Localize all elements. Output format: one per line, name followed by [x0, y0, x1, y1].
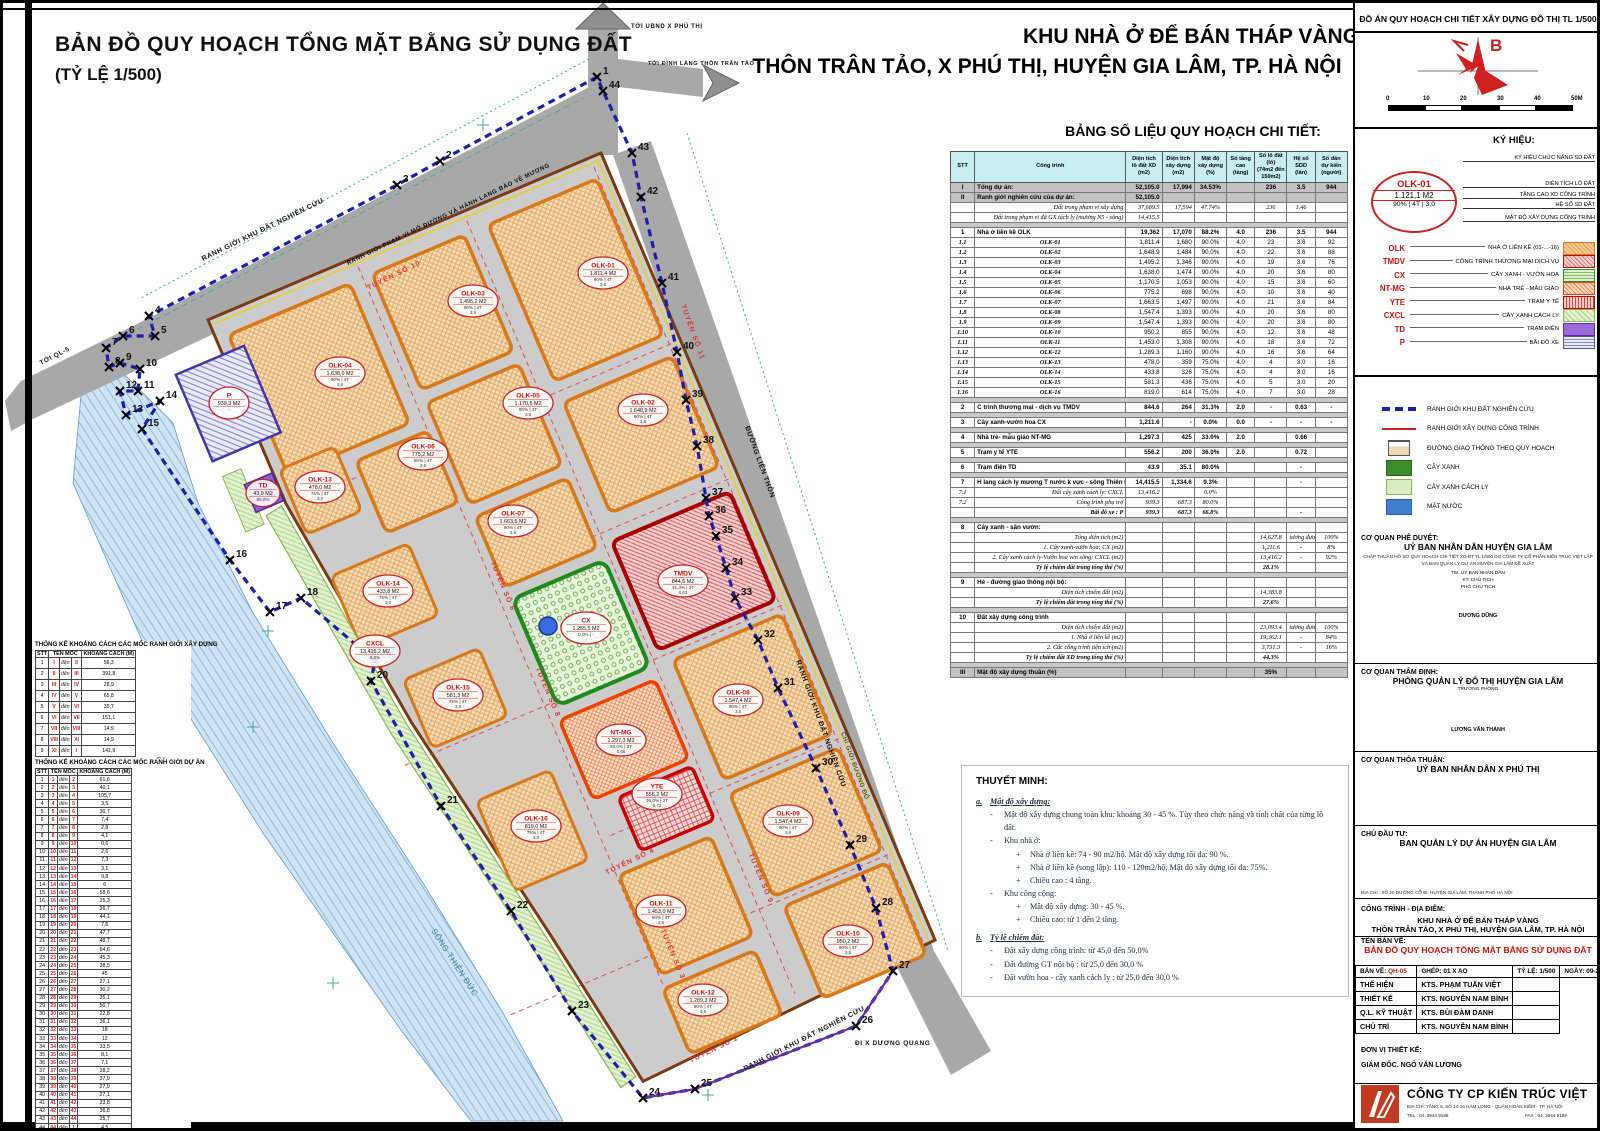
svg-text:OLK-06: OLK-06	[411, 444, 435, 451]
boundary-marker-38: 38	[693, 435, 715, 450]
road-label: TUYẾN SỐ 11	[679, 303, 708, 361]
table-row: 4444đến14,5	[36, 1124, 132, 1131]
svg-text:75% | 4T: 75% | 4T	[527, 830, 545, 835]
table-row: Diện tích chiếm đất (m2)14,383.8	[951, 587, 1348, 597]
parcel-olk-02	[564, 356, 720, 513]
svg-text:26: 26	[862, 1015, 874, 1026]
table-row: 1.12OLK-121,289.31,16090.0%4.0163.664	[951, 347, 1348, 357]
table-row: 7.1Đất cây xanh cách ly: CXCL13,416.20.0…	[951, 487, 1348, 497]
svg-text:3,0: 3,0	[317, 496, 324, 501]
svg-text:44: 44	[609, 80, 621, 91]
parcel-label-olk-16: OLK-16819,0 M275% | 4T3,0	[511, 810, 561, 842]
scale-segment	[1536, 105, 1573, 111]
column-header: Số dân dự kiến (người)	[1315, 152, 1347, 183]
svg-text:OLK-08: OLK-08	[726, 690, 750, 697]
table-row: 1. Nhà ở liền kề (m2)19,362.1-84%	[951, 632, 1348, 642]
svg-text:-: -	[585, 637, 587, 642]
table-row: 4IVđếnV65,8	[36, 691, 136, 702]
table-row: 3131đến3236,1	[36, 1018, 132, 1026]
svg-text:22: 22	[517, 900, 529, 911]
park-pond	[539, 617, 557, 635]
svg-text:3,6: 3,6	[640, 419, 647, 424]
boundary-marker-23: 23	[568, 1000, 590, 1015]
map-text: RANH GIỚI KHU ĐẤT NGHIÊN CỨU	[794, 658, 849, 788]
svg-text:37: 37	[712, 487, 724, 498]
svg-text:3,0: 3,0	[385, 600, 392, 605]
parcel-olk-11	[619, 836, 753, 974]
scale-tick-label: 20	[1460, 96, 1467, 102]
boundary-marker-14: 14	[156, 390, 178, 405]
svg-text:1.663,5 M2: 1.663,5 M2	[500, 519, 527, 525]
table-row: Tổng diện tích (m2)14,627.8tương đương10…	[951, 532, 1348, 542]
svg-text:31,3% | 2T: 31,3% | 2T	[672, 585, 694, 590]
note-line: b.Tỷ lệ chiếm đất:	[976, 931, 1336, 944]
svg-text:32: 32	[764, 629, 776, 640]
svg-text:3,6: 3,6	[700, 1009, 707, 1014]
svg-text:90% | 4T: 90% | 4T	[414, 458, 432, 463]
project-title-line2: THÔN TRÂN TẢO, X PHÚ THỊ, HUYỆN GIA LÂM,…	[731, 55, 1363, 79]
svg-text:1.453,0 M2: 1.453,0 M2	[648, 909, 675, 915]
svg-text:42: 42	[647, 186, 659, 197]
sample-area: 1.121,1 M2	[1373, 190, 1455, 201]
table-row: 2626đến2727,1	[36, 978, 132, 986]
svg-text:556,2 M2: 556,2 M2	[646, 792, 668, 798]
legend-item-olk: OLKNHÀ Ở LIỀN KỀ (01-...-16)	[1363, 241, 1595, 255]
svg-text:24: 24	[649, 1087, 661, 1098]
parcel-label-cx: CX1.255,5 M20,0% | --	[561, 612, 611, 644]
boundary-marker-10: 10	[136, 358, 158, 373]
parcel-olk-09	[730, 748, 882, 897]
svg-text:16: 16	[236, 549, 248, 560]
svg-text:27: 27	[899, 960, 911, 971]
svg-text:1.289,3 M2: 1.289,3 M2	[690, 998, 717, 1004]
svg-text:1.547,4 M2: 1.547,4 M2	[725, 698, 752, 704]
parcel-label-olk-12: OLK-121.289,3 M290% | 4T3,6	[678, 984, 728, 1016]
svg-text:CXCL: CXCL	[366, 641, 384, 648]
boundary-marker-18: 18	[297, 587, 319, 602]
table-row: 2323đến2445,3	[36, 954, 132, 962]
parcel-label-olk-07: OLK-071.663,5 M290% | 4T3,6	[488, 505, 538, 537]
table-row: 7H lang cách ly mương T nước k vực - sôn…	[951, 477, 1348, 487]
table-row: 2. Các công trình tiện ích (m2)3,731.3-1…	[951, 642, 1348, 652]
svg-text:43,9 M2: 43,9 M2	[253, 491, 272, 497]
table-row: 7VIIđếnVIII14,9	[36, 724, 136, 735]
parcel-olk-10	[784, 863, 926, 999]
parcel-olk-05	[427, 364, 562, 504]
legend-symbol	[1388, 440, 1410, 456]
planning-data-table: STTCông trìnhDiện tích lô đất XD (m2)Diệ…	[950, 151, 1348, 678]
table-row: IIRanh giới nghiên cứu của dự án:52,105.…	[951, 192, 1348, 202]
svg-text:80,0%: 80,0%	[256, 497, 269, 502]
svg-text:0,0%: 0,0%	[370, 655, 380, 660]
scale-tick-label: 50M	[1571, 96, 1583, 102]
road-label: TUYẾN SỐ 8	[534, 665, 564, 718]
svg-text:P: P	[227, 393, 232, 400]
design-unit-box: ĐƠN VỊ THIẾT KẾ: GIÁM ĐỐC. NGÔ VĂN LƯƠNG	[1355, 1043, 1600, 1084]
scale-segment	[1499, 105, 1536, 111]
svg-text:90% | 4T: 90% | 4T	[652, 915, 670, 920]
boundary-marker-4: 4	[145, 305, 161, 320]
table-row: 77đến82,8	[36, 824, 132, 832]
table-row: 1.6OLK-06775.269890.0%4.0103.640	[951, 287, 1348, 297]
column-header: Số tầng cao (tầng)	[1227, 152, 1255, 183]
legend-item-nt-mg: NT-MGNHÀ TRẺ - MẪU GIÁO	[1363, 282, 1595, 296]
boundary-marker-11: 11	[134, 380, 155, 395]
boundary-marker-34: 34	[722, 557, 744, 572]
boundary-marker-13: 13	[122, 404, 144, 419]
note-line: -Đất vườn hoa - cây xanh cách ly : từ 25…	[976, 971, 1336, 984]
svg-text:OLK-07: OLK-07	[501, 511, 525, 518]
boundary-marker-8: 8	[105, 356, 121, 371]
boundary-marker-9: 9	[116, 352, 132, 367]
svg-text:OLK-16: OLK-16	[524, 816, 548, 823]
boundary-marker-3: 3	[393, 174, 409, 189]
svg-text:36,0% | 2T: 36,0% | 2T	[646, 798, 668, 803]
column-header: Diện tích xây dựng (m2)	[1162, 152, 1194, 183]
table-row: 1.14OLK-14433.832675.0%4.043.016	[951, 367, 1348, 377]
parcel-olk-04	[229, 283, 410, 474]
table-row: 2727đến2830,2	[36, 986, 132, 994]
svg-text:29: 29	[856, 834, 868, 845]
table-row: 88đến94,1	[36, 832, 132, 840]
legend-item-td: TDTRẠM ĐIỆN	[1363, 322, 1595, 336]
table-row: 2020đến2147,7	[36, 929, 132, 937]
legend-swatch	[1563, 323, 1595, 336]
svg-text:39: 39	[692, 389, 704, 400]
table-row: 10Đất xây dựng công trình	[951, 612, 1348, 622]
legend-symbol	[1382, 428, 1416, 430]
drawing-name-box: TÊN BẢN VẼ: BẢN ĐỒ QUY HOẠCH TỔNG MẶT BẰ…	[1355, 936, 1600, 966]
table-row: 1414đến156	[36, 881, 132, 889]
scale-segment	[1388, 105, 1425, 111]
boundary-legend-item: ĐƯỜNG GIAO THÔNG THEO QUY HOẠCH	[1381, 440, 1597, 456]
svg-text:0,63: 0,63	[679, 590, 688, 595]
svg-text:OLK-15: OLK-15	[446, 685, 470, 692]
boundary-marker-40: 40	[673, 341, 695, 356]
table-row: 11đến261,6	[36, 776, 132, 784]
study-boundary	[106, 77, 893, 1098]
symbol-key-label: HỆ SỐ SD ĐẤT	[1463, 202, 1595, 209]
map-text: SÔNG THIÊN ĐỨC	[429, 927, 479, 998]
data-table-title: BẢNG SỐ LIỆU QUY HOẠCH CHI TIẾT:	[1033, 123, 1353, 139]
parcel-label-olk-08: OLK-081.547,4 M290% | 4T3,6	[713, 684, 763, 716]
table-row: Bãi đỗ xe : P939.3687.366.8%-	[951, 507, 1348, 517]
parcel-label-td: TD43,9 M280,0%	[246, 479, 280, 506]
boundary-marker-29: 29	[846, 834, 868, 849]
sample-density-floors: 90% | 4T | 3,0	[1373, 201, 1455, 208]
plan-sheet: 1234567891011121314151617181920212223242…	[0, 0, 1600, 1131]
table-header-row: STTCông trìnhDiện tích lô đất XD (m2)Diệ…	[951, 152, 1348, 183]
boundary-marker-7: 7	[102, 337, 118, 352]
note-line: +Nhà ở liền kề: 74 - 90 m2/hộ. Mật độ xâ…	[976, 848, 1336, 861]
table-row: 3333đến3412	[36, 1035, 132, 1043]
svg-text:OLK-14: OLK-14	[376, 581, 400, 588]
table-row: 2222đến2364,6	[36, 945, 132, 953]
svg-text:1.297,3 M2: 1.297,3 M2	[608, 738, 635, 744]
svg-text:OLK-02: OLK-02	[631, 400, 655, 407]
parcel-nt-mg	[559, 680, 688, 800]
svg-text:90% | 4T: 90% | 4T	[694, 1004, 712, 1009]
boundary-marker-5: 5	[151, 325, 167, 340]
svg-text:OLK-05: OLK-05	[516, 393, 540, 400]
table-row: 8Cây xanh - sân vườn:	[951, 522, 1348, 532]
svg-text:8: 8	[115, 356, 121, 367]
table-row: 3636đến377,1	[36, 1059, 132, 1067]
parcel-yte	[618, 766, 714, 851]
map-text: RANH GIỚI KHU ĐẤT NGHIÊN CỨU	[199, 195, 324, 263]
note-line: +Mật độ xây dựng: 30 - 45 %.	[976, 900, 1336, 913]
svg-text:2: 2	[446, 150, 452, 161]
svg-text:3,6: 3,6	[600, 282, 607, 287]
road-label: TUYẾN SỐ 6	[489, 559, 519, 612]
svg-text:6: 6	[129, 325, 135, 336]
table-row: Diện tích chiếm đất (m2)23,093.4tương đư…	[951, 622, 1348, 632]
svg-text:33,0% | 2T: 33,0% | 2T	[610, 744, 632, 749]
svg-text:OLK-11: OLK-11	[649, 901, 672, 908]
svg-text:12: 12	[126, 380, 138, 391]
note-line: -Khu công cộng:	[976, 887, 1336, 900]
review-box: CƠ QUAN THẨM ĐỊNH: PHÒNG QUẢN LÝ ĐÔ THỊ …	[1355, 663, 1600, 752]
svg-text:33: 33	[741, 587, 753, 598]
table-row: 2. Cây xanh cách ly-Vườn hoa ven sông: C…	[951, 552, 1348, 562]
svg-text:-: -	[374, 660, 376, 665]
legend-swatch	[1563, 255, 1595, 268]
road-label: TUYẾN SỐ 10	[365, 257, 422, 292]
table-row: 3232đến3318	[36, 1026, 132, 1034]
svg-text:20: 20	[377, 670, 389, 681]
parcel-label-olk-01: OLK-011.811,4 M290% | 4T3,6	[578, 257, 628, 289]
svg-text:3,6: 3,6	[510, 530, 517, 535]
column-header: TÊN MỐC	[49, 651, 82, 658]
svg-text:13.416,2 M2: 13.416,2 M2	[360, 649, 390, 655]
svg-text:7: 7	[112, 337, 118, 348]
table-row: 7.2Công trình phụ trợ939.3687.380.0%	[951, 497, 1348, 507]
parcel-label-olk-13: OLK-13478,0 M275% | 4T3,0	[295, 471, 345, 503]
table-row: 1IđếnII56,3	[36, 658, 136, 669]
table-row: Đất trong phạm vi đã GX tách ly (mương N…	[951, 212, 1348, 222]
boundary-legend-item: CÂY XANH	[1381, 460, 1597, 476]
road-label: TUYẾN SỐ 2	[687, 1032, 740, 1064]
sheet-title: BẢN ĐỒ QUY HOẠCH TỔNG MẶT BẰNG SỬ DỤNG Đ…	[55, 33, 632, 57]
svg-text:90% | 4T: 90% | 4T	[519, 407, 537, 412]
boundary-marker-36: 36	[705, 505, 727, 520]
boundary-marker-1: 1	[593, 66, 609, 81]
parcel-olk-15	[403, 648, 507, 748]
svg-text:90% | 4T: 90% | 4T	[634, 414, 652, 419]
road-label: TUYẾN SỐ 4	[603, 844, 656, 876]
boundary-marker-44: 44	[599, 80, 621, 95]
frame-left	[25, 3, 32, 1131]
table-row: 1515đến1658,6	[36, 889, 132, 897]
legend-swatch	[1563, 336, 1595, 349]
svg-text:3,6: 3,6	[735, 709, 742, 714]
svg-text:4: 4	[155, 305, 161, 316]
svg-text:3: 3	[403, 174, 409, 185]
table-row: 3535đến368,1	[36, 1051, 132, 1059]
project-title-line1: KHU NHÀ Ở ĐỂ BÁN THÁP VÀNG	[1023, 25, 1359, 49]
table-row: 1010đến112,6	[36, 848, 132, 856]
green-strip	[222, 469, 264, 532]
svg-text:581,3 M2: 581,3 M2	[447, 693, 469, 699]
boundary-marker-41: 41	[658, 272, 680, 287]
explanatory-notes: THUYẾT MINH: a.Mật độ xây dựng:-Mật độ x…	[961, 765, 1349, 997]
project-box: CÔNG TRÌNH - ĐỊA ĐIỂM: KHU NHÀ Ở ĐỂ BÁN …	[1355, 898, 1600, 937]
scale-tick-label: 0	[1386, 96, 1389, 102]
svg-text:90% | 4T: 90% | 4T	[594, 277, 612, 282]
svg-text:90% | 4T: 90% | 4T	[729, 704, 747, 709]
parcel-cxcl-strip	[265, 466, 637, 1128]
company-footer: CÔNG TY CP KIẾN TRÚC VIỆT ĐỊA CHỈ: TẦNG …	[1355, 1085, 1600, 1125]
boundary-marker-30: 30	[812, 757, 834, 772]
boundary-marker-15: 15	[138, 418, 160, 433]
svg-text:-: -	[228, 407, 230, 412]
road-label: TUYẾN SỐ 3	[659, 927, 689, 980]
table-row: Tỷ lệ chiếm đất trong tổng thể (%)28.1%	[951, 562, 1348, 572]
svg-text:43: 43	[638, 142, 650, 153]
svg-text:13: 13	[132, 404, 144, 415]
parcel-olk-08	[673, 614, 832, 780]
column-header: Công trình	[975, 152, 1126, 183]
boundary-marker-43: 43	[628, 142, 650, 157]
note-line: -Đất xây dựng công trình: từ 45,0 đến 50…	[976, 944, 1336, 957]
svg-text:23: 23	[578, 1000, 590, 1011]
table-row: 6VIđếnVII151,1	[36, 713, 136, 724]
svg-text:3,0: 3,0	[455, 704, 462, 709]
svg-text:950,2 M2: 950,2 M2	[837, 939, 859, 945]
svg-text:1.547,4 M2: 1.547,4 M2	[775, 819, 802, 825]
parcel-label-olk-04: OLK-041.638,0 M290% | 4T3,6	[315, 357, 365, 389]
parcel-label-olk-06: OLK-06775,2 M290% | 4T3,6	[398, 438, 448, 470]
table-row: 1.5OLK-051,170.51,05390.0%4.0153.660	[951, 277, 1348, 287]
boundary-marker-16: 16	[226, 549, 248, 564]
scale-tick-label: 30	[1497, 96, 1504, 102]
svg-text:0,72: 0,72	[653, 803, 662, 808]
site-blocks	[161, 153, 941, 1131]
parcel-olk-06	[356, 431, 458, 533]
table-row: 2424đến2538,5	[36, 962, 132, 970]
legend-symbol	[1386, 460, 1412, 476]
parcel-label-nt-mg: NT-MG1.297,3 M233,0% | 2T0,66	[596, 724, 646, 756]
map-text: RANH GIỚI KHU ĐẤT NGHIÊN CỨU	[741, 1003, 866, 1073]
table-row: 2IIđếnIII391,8	[36, 669, 136, 680]
table-row: 1.3OLK-031,495.21,34690.0%4.0193.676	[951, 257, 1348, 267]
parcel-label-tmdv: TMDV844,6 M231,3% | 2T0,63	[658, 565, 708, 597]
table-row: 1.9OLK-091,547.41,39390.0%4.0203.680	[951, 317, 1348, 327]
note-line: +Chiều cao : 4 tầng.	[976, 874, 1336, 887]
svg-text:433,8 M2: 433,8 M2	[377, 589, 399, 595]
info-row: Q.L. KỸ THUẬTKTS. BÙI ĐÀM DANH	[1356, 1006, 1600, 1020]
symbol-key-label: MẬT ĐỘ XÂY DỰNG CÔNG TRÌNH	[1463, 215, 1595, 222]
svg-text:38: 38	[703, 435, 715, 446]
svg-text:1.638,0 M2: 1.638,0 M2	[327, 371, 354, 377]
sheet-scale: (TỶ LỆ 1/500)	[55, 65, 162, 85]
table-row: 3737đến3828,2	[36, 1067, 132, 1075]
boundary-marker-12: 12	[116, 380, 138, 395]
boundary-marker-37: 37	[702, 487, 724, 502]
table-row: 9XIđếnI141,9	[36, 746, 136, 757]
column-header: KHOẢNG CÁCH (M)	[82, 651, 136, 658]
info-row: CHỦ TRÌKTS. NGUYỄN NAM BÌNH	[1356, 1020, 1600, 1034]
parcel-label-olk-05: OLK-051.170,5 M290% | 4T3,6	[503, 387, 553, 419]
svg-text:819,0 M2: 819,0 M2	[525, 824, 547, 830]
table-row: 1.10OLK-10950.285590.0%4.0123.648	[951, 327, 1348, 337]
table-row: 4242đến4336,8	[36, 1107, 132, 1115]
table-row: 3IIIđếnIV28,9	[36, 680, 136, 691]
table-row: 4343đến4425,7	[36, 1115, 132, 1123]
column-header: STT	[36, 651, 49, 658]
boundary-marker-17: 17	[266, 601, 288, 616]
svg-text:OLK-12: OLK-12	[691, 990, 715, 997]
info-cell: NGÀY: 09-2011	[1560, 966, 1600, 978]
table-row: 1313đến149,8	[36, 873, 132, 881]
svg-text:OLK-10: OLK-10	[836, 931, 860, 938]
table-row: 2828đến2935,1	[36, 994, 132, 1002]
construction-boundary-stats: THỐNG KÊ KHOẢNG CÁCH CÁC MỐC RANH GIỚI X…	[35, 641, 191, 757]
map-text: ĐƯỜNG LIÊN THÔN	[743, 425, 777, 499]
legend-swatch	[1563, 296, 1595, 309]
note-line: -Mật độ xây dựng chung toàn khu: khoảng …	[976, 808, 1336, 834]
parcel-label-olk-02: OLK-021.648,9 M290% | 4T3,6	[618, 394, 668, 426]
parcel-label-olk-10: OLK-10950,2 M290% | 4T3,6	[823, 925, 873, 957]
scale-segment	[1425, 105, 1462, 111]
boundary-marker-27: 27	[889, 960, 911, 975]
info-row: THIẾT KẾKTS. NGUYỄN NAM BÌNH	[1356, 992, 1600, 1006]
parcel-labels: OLK-011.811,4 M290% | 4T3,6OLK-021.648,9…	[209, 257, 873, 1016]
svg-text:OLK-13: OLK-13	[308, 477, 332, 484]
table-row: 1.16OLK-16819.061475.0%4.073.028	[951, 387, 1348, 397]
boundary-marker-20: 20	[367, 670, 389, 685]
notes-title: THUYẾT MINH:	[976, 776, 1336, 787]
table-row: 66đến77,4	[36, 816, 132, 824]
svg-text:OLK-04: OLK-04	[328, 363, 352, 370]
table-row: 3939đến4027,9	[36, 1083, 132, 1091]
legend-item-p: PBÃI ĐỖ XE	[1363, 336, 1595, 350]
legend-item-tmdv: TMDVCÔNG TRÌNH THƯƠNG MẠI DỊCH VỤ	[1363, 255, 1595, 269]
scale-tick-label: 40	[1534, 96, 1541, 102]
svg-text:75% | 4T: 75% | 4T	[379, 595, 397, 600]
table-row: 1111đến127,3	[36, 856, 132, 864]
svg-text:3,6: 3,6	[420, 463, 427, 468]
column-header: KHOẢNG CÁCH (M)	[78, 769, 132, 776]
table-row: ITổng dự án:52,105.017,99434.53%2363.594…	[951, 182, 1348, 192]
table-row: 2525đến2645	[36, 970, 132, 978]
svg-text:30: 30	[822, 757, 834, 768]
table-row: 3434đến3533,5	[36, 1043, 132, 1051]
sample-parcel-symbol: OLK-01 1.121,1 M2 90% | 4T | 3,0	[1371, 171, 1457, 233]
svg-text:90% | 4T: 90% | 4T	[839, 945, 857, 950]
legend-symbol	[1386, 479, 1412, 495]
table-row: 1818đến1944,1	[36, 913, 132, 921]
boundary-marker-28: 28	[872, 897, 894, 912]
note-line: -Khu nhà ở:	[976, 834, 1336, 847]
boundary-marker-24: 24	[639, 1087, 661, 1102]
parcel-p-parking	[176, 346, 281, 461]
table-row: IIIMật độ xây dựng thuần (%)35%	[951, 667, 1348, 677]
parcel-olk-07	[475, 478, 597, 587]
parcel-olk-03	[372, 235, 513, 390]
survey-crosses	[247, 119, 714, 1101]
sample-code: OLK-01	[1373, 179, 1455, 190]
map-text: TỚI QL-5	[38, 344, 71, 367]
symbol-key-label: KÝ HIỆU CHỨC NĂNG SD ĐẤT	[1463, 155, 1595, 162]
table-row: 6Trạm điện TD43.935.180.0%-	[951, 462, 1348, 472]
svg-text:31: 31	[784, 677, 796, 688]
map-text: ĐI X DƯƠNG QUANG	[855, 1040, 930, 1047]
project-boundary-stats: THỐNG KÊ KHOẢNG CÁCH CÁC MỐC RANH GIỚI D…	[35, 759, 191, 1131]
svg-text:TMDV: TMDV	[674, 571, 693, 578]
svg-text:90% | 4T: 90% | 4T	[331, 377, 349, 382]
table-row: 1.15OLK-15581.343675.0%4.053.020	[951, 377, 1348, 387]
